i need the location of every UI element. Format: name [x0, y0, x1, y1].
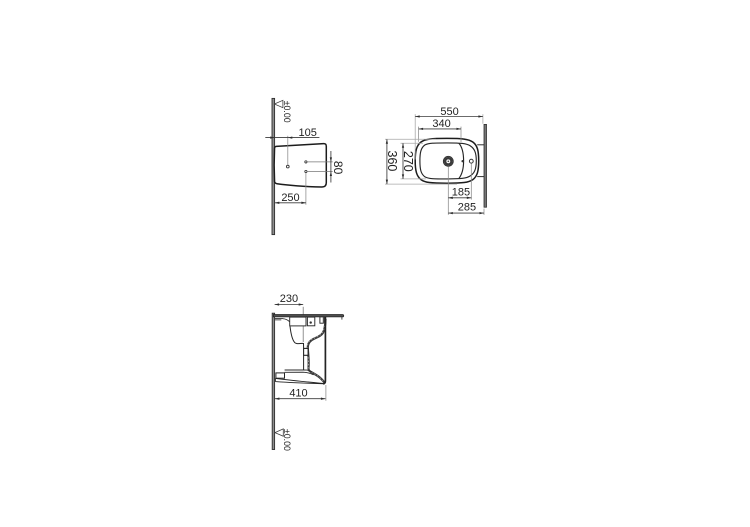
svg-text:270: 270	[401, 151, 415, 172]
svg-text:340: 340	[432, 118, 450, 130]
svg-text:230: 230	[280, 293, 298, 305]
svg-text:250: 250	[281, 192, 299, 204]
svg-text:±0.00: ±0.00	[282, 429, 292, 451]
svg-text:550: 550	[440, 106, 458, 118]
svg-text:80: 80	[331, 161, 345, 175]
svg-text:105: 105	[299, 127, 317, 139]
svg-text:410: 410	[289, 387, 307, 399]
svg-text:185: 185	[452, 187, 470, 199]
svg-text:±0.00: ±0.00	[282, 101, 292, 123]
svg-text:360: 360	[385, 151, 399, 172]
svg-text:285: 285	[458, 202, 476, 214]
